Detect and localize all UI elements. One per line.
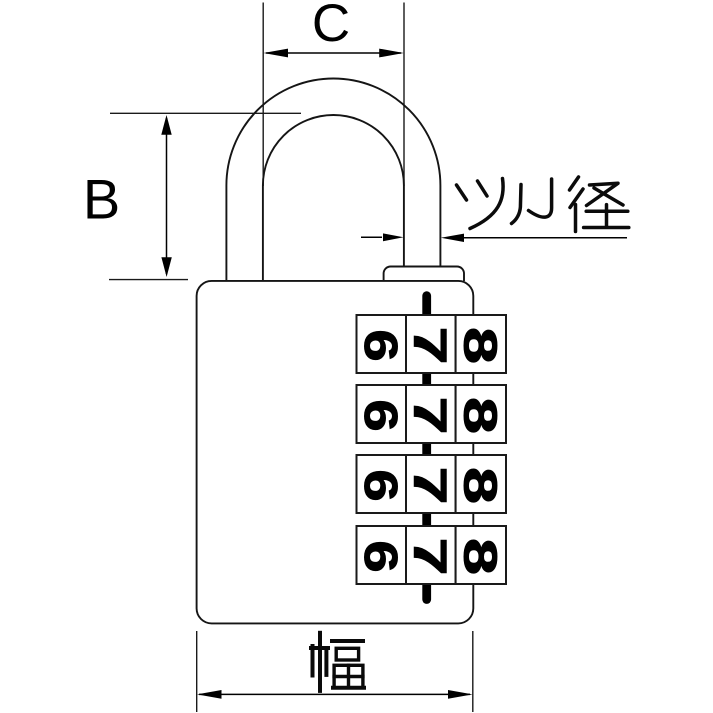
svg-text:7: 7 <box>404 327 455 365</box>
svg-text:6: 6 <box>354 540 405 572</box>
svg-text:7: 7 <box>404 397 455 435</box>
svg-text:8: 8 <box>454 327 506 364</box>
svg-text:8: 8 <box>454 467 506 504</box>
svg-text:6: 6 <box>354 469 405 501</box>
svg-text:7: 7 <box>404 538 455 576</box>
svg-text:6: 6 <box>354 399 405 431</box>
svg-text:C: C <box>312 0 350 53</box>
svg-text:8: 8 <box>454 397 506 434</box>
svg-text:8: 8 <box>454 538 506 575</box>
svg-text:7: 7 <box>404 467 455 505</box>
svg-text:B: B <box>83 168 120 231</box>
svg-text:6: 6 <box>354 329 405 361</box>
